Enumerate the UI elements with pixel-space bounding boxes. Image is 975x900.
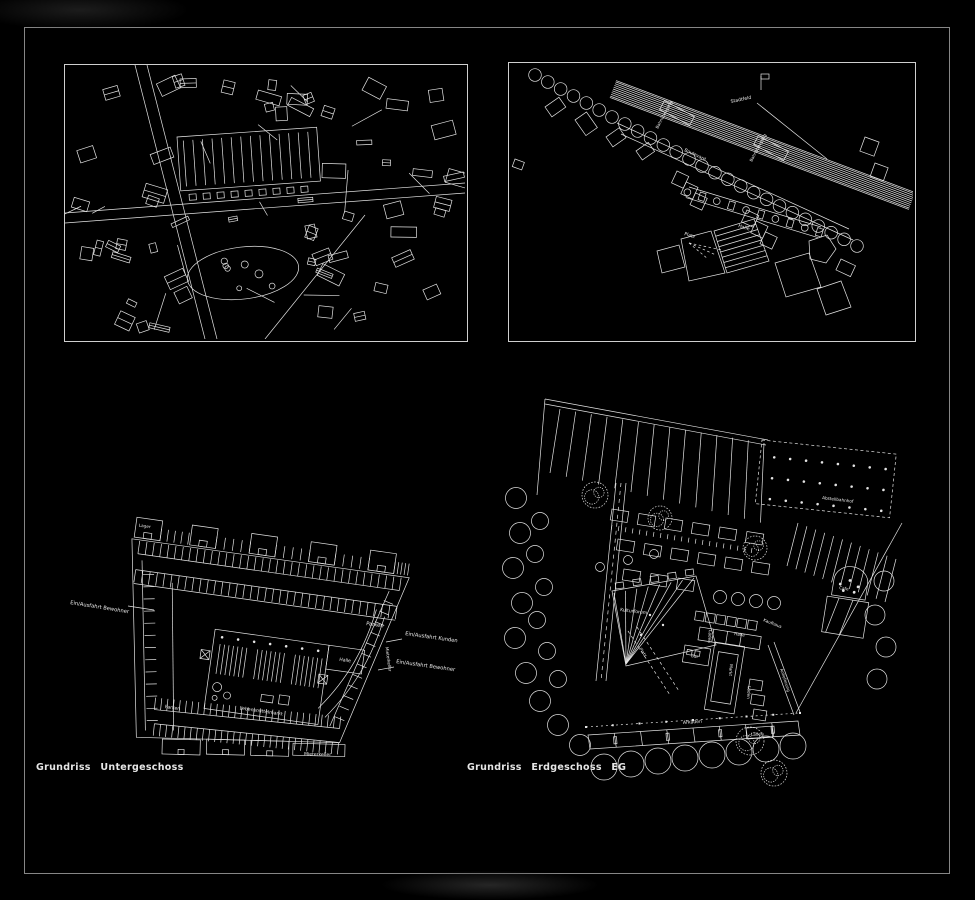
plan-line <box>283 561 285 574</box>
plan-rect <box>189 194 196 200</box>
plan-line <box>143 573 154 576</box>
plan-rect <box>273 188 280 194</box>
plan-circle <box>223 692 231 700</box>
plan-rect <box>126 299 137 308</box>
plan-line <box>716 542 717 547</box>
plan-rect <box>697 553 716 567</box>
plan-circle <box>768 597 781 610</box>
plan-line <box>174 531 176 543</box>
plan-rect <box>639 723 641 725</box>
plan-ellipse <box>184 240 302 305</box>
plan-line <box>214 730 216 742</box>
plan-circle <box>301 647 304 650</box>
plan-circle <box>816 503 819 506</box>
plan-line <box>327 715 329 727</box>
plan-rect <box>383 201 403 219</box>
plan-rect <box>342 211 354 222</box>
plan-line <box>196 728 198 740</box>
plan-line <box>663 427 670 499</box>
plan-g <box>177 127 321 201</box>
plan-line <box>306 739 308 751</box>
plan-rect <box>222 750 228 755</box>
plan-rect <box>377 565 386 572</box>
plan-line <box>626 580 683 664</box>
plan-line <box>275 545 277 557</box>
plan-line <box>876 556 887 599</box>
plan-line <box>185 577 187 590</box>
plan-line <box>617 123 849 229</box>
plan-line <box>203 550 205 563</box>
plan-g <box>162 739 200 755</box>
plan-line <box>192 578 194 591</box>
plan-rect <box>258 549 267 556</box>
plan-line <box>220 731 222 743</box>
plan-circle <box>800 501 803 504</box>
plan-line <box>787 523 798 566</box>
plan-line <box>596 483 616 681</box>
plan-circle <box>580 97 593 110</box>
plan-line <box>153 724 155 736</box>
plan-line <box>145 634 156 637</box>
plan-line <box>190 727 192 739</box>
label-bar: Bar <box>691 653 699 659</box>
plan-rect <box>434 208 446 218</box>
plan-line <box>368 558 370 570</box>
plan-line <box>245 733 247 745</box>
plan-circle <box>714 591 727 604</box>
plan-line <box>550 409 560 473</box>
site-plan-geometry <box>512 69 913 315</box>
plan-circle <box>884 468 887 471</box>
plan-line <box>725 256 767 268</box>
plan-line <box>282 737 284 749</box>
plan-circle <box>864 508 867 511</box>
plan-line <box>805 530 816 573</box>
plan-line <box>165 725 167 737</box>
plan-rect <box>724 557 743 571</box>
plan-circle <box>506 488 527 509</box>
plan-circle <box>865 605 885 625</box>
plan-rect <box>412 169 432 178</box>
plan-line <box>730 545 731 550</box>
ground-floor-plan-geometry <box>503 399 903 786</box>
plan-circle <box>772 216 779 223</box>
plan-rect <box>606 128 626 147</box>
plan-circle <box>317 649 320 652</box>
plan-line <box>291 655 295 685</box>
plan-line <box>885 559 896 602</box>
plan-rect <box>156 75 180 96</box>
plan-rect <box>391 227 417 238</box>
plan-rect <box>245 190 252 196</box>
plan-line <box>223 86 234 89</box>
plan-line <box>334 568 336 581</box>
plan-circle <box>834 484 837 487</box>
plan-rect <box>203 193 210 199</box>
plan-circle <box>874 571 894 591</box>
plan-line <box>723 543 724 548</box>
plan-line <box>610 97 909 209</box>
plan-rect <box>136 321 149 333</box>
plan-rect <box>251 740 289 756</box>
plan-line <box>250 136 253 182</box>
plan-line <box>229 646 233 676</box>
plan-polygon <box>657 245 685 273</box>
label-entry-exit-residents-right: Ein/Ausfahrt Bewohner <box>396 659 457 673</box>
plan-line <box>823 536 834 579</box>
plan-line <box>241 540 243 552</box>
plan-rect <box>726 616 736 626</box>
plan-circle <box>753 736 779 762</box>
plan-line <box>717 230 758 242</box>
plan-rect <box>751 221 768 238</box>
plan-rect <box>716 615 726 625</box>
plan-line <box>343 554 345 566</box>
plan-rect <box>672 171 689 188</box>
plan-line <box>399 578 401 591</box>
plan-line <box>191 701 193 713</box>
plan-circle <box>866 487 869 490</box>
plan-rect <box>685 569 694 576</box>
plan-circle <box>760 193 773 206</box>
plan-line <box>545 399 768 440</box>
plan-line <box>135 65 205 339</box>
plan-rect <box>512 159 524 170</box>
plan-line <box>385 576 387 589</box>
plan-line <box>719 235 760 247</box>
label-platz: Platz <box>683 231 696 240</box>
plan-rect <box>705 613 715 623</box>
plan-circle <box>773 200 786 213</box>
plan-line <box>614 733 616 747</box>
plan-circle <box>253 640 256 643</box>
plan-line <box>737 546 738 551</box>
plan-circle <box>684 189 691 196</box>
plan-line <box>681 537 682 542</box>
plan-circle <box>852 464 855 467</box>
plan-line <box>159 724 161 736</box>
plan-rect <box>275 107 287 121</box>
plan-rect <box>585 726 587 728</box>
plan-rect <box>217 192 224 198</box>
label-mieterkeller-box: Mieterkeller <box>304 751 331 758</box>
plan-line <box>319 566 321 579</box>
plan-rect <box>428 88 444 102</box>
plan-rect <box>149 243 158 254</box>
plan-line <box>272 589 274 602</box>
plan-line <box>145 646 156 649</box>
plan-rect <box>750 694 764 706</box>
plan-line <box>308 132 311 178</box>
plan-rect <box>695 611 705 621</box>
plan-line <box>183 727 185 739</box>
plan-line <box>323 596 325 609</box>
plan-line <box>796 526 807 569</box>
plan-line <box>653 532 654 537</box>
plan-circle <box>832 504 835 507</box>
plan-line <box>611 94 910 206</box>
ground-floor-plan-drawing: Abstellbahnhof Kulturforum Kaufhaus Hall… <box>500 383 960 793</box>
plan-rect <box>80 246 94 260</box>
plan-line <box>280 653 284 683</box>
plan-line <box>744 547 745 552</box>
plan-circle <box>510 523 531 544</box>
plan-line <box>236 584 238 597</box>
plan-circle <box>512 593 533 614</box>
plan-rect <box>757 210 765 219</box>
plan-line <box>308 594 310 607</box>
plan-g <box>251 740 289 756</box>
plan-line <box>154 698 156 710</box>
plan-g <box>206 739 244 755</box>
plan-line <box>167 545 169 558</box>
plan-line <box>566 412 576 477</box>
plan-circle <box>212 695 218 701</box>
plan-line <box>359 557 361 569</box>
plan-line <box>170 575 172 588</box>
presentation-board: Stadtfeld Bahnübergang Bahnübergang Boul… <box>0 0 975 900</box>
plan-line <box>206 580 208 593</box>
plan-line <box>212 139 215 185</box>
plan-circle <box>732 593 745 606</box>
plan-rect <box>259 189 266 195</box>
plan-circle <box>532 513 549 530</box>
plan-line <box>181 532 183 544</box>
plan-line <box>134 570 136 583</box>
plan-line <box>258 125 277 140</box>
plan-line <box>118 318 132 325</box>
plan-line <box>601 483 621 681</box>
plan-line <box>660 533 661 538</box>
plan-line <box>716 224 756 236</box>
plan-line <box>196 549 198 562</box>
plan-g <box>822 564 874 639</box>
plan-circle <box>554 83 567 96</box>
plan-polygon <box>775 253 821 297</box>
plan-circle <box>516 663 537 684</box>
plan-line <box>189 548 191 561</box>
plan-line <box>160 529 162 541</box>
plan-line <box>709 541 710 546</box>
plan-rect <box>431 120 456 140</box>
plan-line <box>228 583 230 596</box>
plan-line <box>618 526 619 531</box>
plan-line <box>335 717 345 721</box>
plan-line <box>65 193 465 223</box>
plan-rect <box>278 695 289 705</box>
plan-line <box>302 713 304 725</box>
plan-g <box>755 440 896 518</box>
plan-rect <box>822 596 869 638</box>
plan-line <box>222 705 224 717</box>
plan-line <box>279 134 282 180</box>
plan-line <box>226 731 228 743</box>
plan-circle <box>780 733 806 759</box>
plan-line <box>229 218 238 220</box>
label-cafe: Cafe <box>839 585 850 591</box>
plan-line <box>265 588 267 601</box>
plan-circle <box>241 261 248 268</box>
plan-line <box>696 433 702 508</box>
plan-line <box>276 560 278 573</box>
plan-circle <box>550 671 567 688</box>
plan-line <box>339 706 349 710</box>
plan-line <box>138 541 140 554</box>
plan-line <box>154 293 166 329</box>
plan-line <box>702 540 703 545</box>
plan-line <box>152 543 154 556</box>
plan-line <box>240 555 242 568</box>
plan-line <box>167 275 185 283</box>
plan-line <box>247 556 249 569</box>
plan-line <box>174 546 176 559</box>
label-entry-exit-customers: Ein/Ausfahrt Kunden <box>405 631 458 644</box>
plan-line <box>599 417 608 485</box>
label-stadtfeld: Stadtfeld <box>730 95 752 105</box>
plan-line <box>177 245 185 275</box>
plan-line <box>225 553 227 566</box>
plan-line <box>294 592 296 605</box>
label-halle: Halle <box>737 223 750 232</box>
plan-line <box>388 605 390 618</box>
plan-line <box>263 651 267 681</box>
plan-line <box>218 552 220 565</box>
plan-circle <box>789 458 792 461</box>
plan-line <box>258 650 262 680</box>
plan-circle <box>867 669 887 689</box>
plan-circle <box>596 563 605 572</box>
plan-line <box>221 582 223 595</box>
plan-line <box>292 547 294 559</box>
plan-line <box>307 231 316 235</box>
plan-line <box>145 542 147 555</box>
label-markt: Markt <box>728 664 734 677</box>
plan-circle <box>606 111 619 124</box>
plan-rect <box>308 542 337 565</box>
plan-rect <box>374 282 388 293</box>
plan-circle <box>882 489 885 492</box>
plan-rect <box>718 527 737 541</box>
plan-line <box>211 551 213 564</box>
plan-line <box>145 658 156 661</box>
plan-line <box>243 648 247 678</box>
plan-rect <box>231 191 238 197</box>
label-platz-eg: Platz <box>638 647 648 659</box>
plan-rect <box>162 739 200 755</box>
plan-line <box>222 138 225 184</box>
basement-plan-caption: Grundriss Untergeschoss <box>36 762 184 773</box>
plan-circle <box>503 558 524 579</box>
plan-circle <box>818 482 821 485</box>
plan-rect <box>698 192 706 201</box>
plan-circle <box>805 459 808 462</box>
plan-rect <box>268 80 277 91</box>
plan-line <box>383 600 393 604</box>
plan-line <box>323 110 334 114</box>
plan-circle <box>631 125 644 138</box>
plan-line <box>160 698 162 710</box>
plan-line <box>232 554 234 567</box>
plan-line <box>637 627 679 691</box>
plan-line <box>839 599 853 636</box>
plan-rect <box>612 724 614 726</box>
plan-circle <box>722 173 735 186</box>
plan-circle <box>802 480 805 483</box>
plan-line <box>290 562 292 575</box>
plan-line <box>300 739 302 751</box>
plan-line <box>337 598 339 611</box>
plan-line <box>379 611 389 615</box>
plan-line <box>614 593 626 664</box>
plan-rect <box>317 557 326 564</box>
plan-line <box>435 202 451 206</box>
plan-line <box>163 574 165 587</box>
plan-line <box>689 243 716 255</box>
plan-line <box>632 528 633 533</box>
plan-line <box>65 183 465 213</box>
plan-circle <box>672 745 698 771</box>
plan-line <box>276 653 280 683</box>
plan-line <box>761 443 765 523</box>
plan-g <box>103 517 412 785</box>
plan-rect <box>755 440 896 518</box>
plan-line <box>693 728 695 742</box>
plan-rect <box>357 140 372 145</box>
plan-line <box>408 564 410 576</box>
plan-circle <box>699 742 725 768</box>
plan-circle <box>269 643 272 646</box>
plan-line <box>626 582 671 664</box>
plan-line <box>304 295 340 296</box>
plan-line <box>537 399 545 495</box>
plan-rect <box>178 749 184 754</box>
plan-rect <box>799 712 801 714</box>
plan-line <box>728 438 733 515</box>
plan-rect <box>691 523 710 537</box>
plan-line <box>814 533 825 576</box>
plan-circle <box>593 104 606 117</box>
plan-line <box>625 591 626 664</box>
plan-line <box>615 419 623 488</box>
plan-circle <box>567 90 580 103</box>
plan-rect <box>760 232 777 249</box>
plan-line <box>356 572 358 585</box>
plan-circle <box>212 682 222 692</box>
plan-line <box>298 133 301 179</box>
plan-line <box>688 538 689 543</box>
plan-circle <box>838 233 851 246</box>
aerial-perspective-panel <box>64 64 468 342</box>
plan-line <box>249 541 251 553</box>
plan-line <box>181 547 183 560</box>
plan-circle <box>868 466 871 469</box>
basement-plan-inner-labels: Lager Halle Lebensmittelmarkt Parken Mie… <box>110 523 408 768</box>
plan-line <box>300 656 304 686</box>
plan-line <box>279 590 281 603</box>
basement-plan-drawing: Ein/Ausfahrt Bewohner Parken Ein/Ausfahr… <box>28 488 473 798</box>
plan-rect <box>668 572 677 579</box>
plan-line <box>832 539 843 582</box>
plan-line <box>305 564 307 577</box>
plan-line <box>257 587 259 600</box>
plan-circle <box>821 461 824 464</box>
plan-rect <box>545 97 566 117</box>
plan-line <box>305 657 309 687</box>
plan-line <box>639 530 640 535</box>
plan-line <box>613 89 912 201</box>
site-plan-drawing: Stadtfeld Bahnübergang Bahnübergang Boul… <box>509 63 913 339</box>
label-arkaden: Arkaden <box>683 719 703 726</box>
